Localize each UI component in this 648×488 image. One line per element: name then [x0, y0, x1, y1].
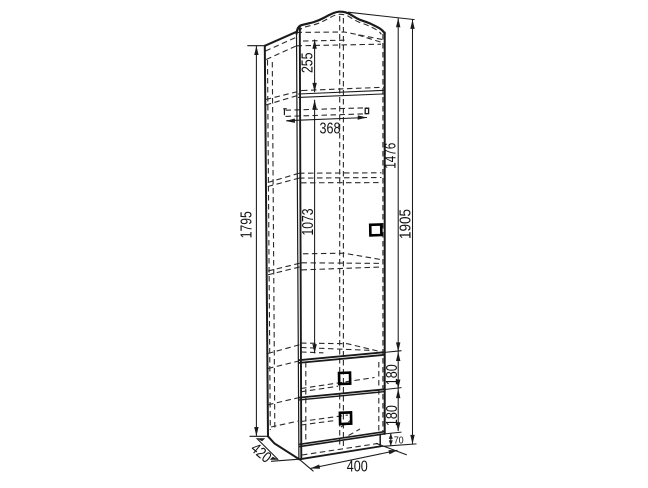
- svg-text:255: 255: [299, 53, 316, 74]
- svg-text:368: 368: [320, 120, 341, 137]
- svg-text:180: 180: [384, 364, 401, 385]
- svg-text:70: 70: [394, 434, 404, 446]
- svg-text:180: 180: [384, 405, 401, 426]
- svg-text:400: 400: [347, 459, 368, 476]
- svg-text:1905: 1905: [397, 209, 414, 239]
- svg-text:1073: 1073: [300, 209, 317, 236]
- svg-text:1795: 1795: [239, 211, 256, 238]
- svg-text:1476: 1476: [383, 143, 400, 169]
